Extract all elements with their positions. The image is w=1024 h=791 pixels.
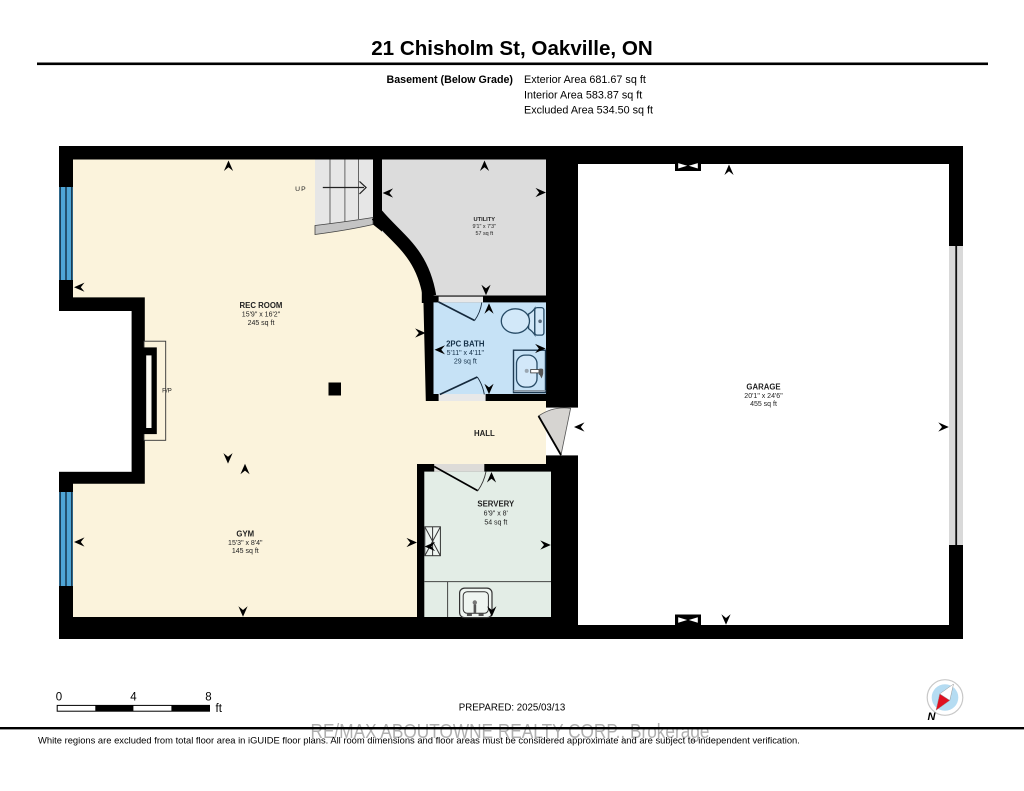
svg-text:SERVERY: SERVERY <box>477 499 515 508</box>
svg-text:0: 0 <box>56 692 62 704</box>
svg-text:9'1" x 7'3": 9'1" x 7'3" <box>473 224 497 230</box>
svg-text:Interior Area 583.87 sq ft: Interior Area 583.87 sq ft <box>524 89 642 101</box>
svg-text:57 sq ft: 57 sq ft <box>475 231 493 237</box>
svg-text:N: N <box>928 711 937 723</box>
svg-text:15'3" x 8'4": 15'3" x 8'4" <box>228 540 263 547</box>
svg-text:REC ROOM: REC ROOM <box>240 301 283 310</box>
svg-text:ft: ft <box>216 703 223 715</box>
svg-text:145 sq ft: 145 sq ft <box>232 548 259 555</box>
svg-text:F/P: F/P <box>162 387 172 394</box>
svg-text:455 sq ft: 455 sq ft <box>750 401 777 408</box>
svg-text:8: 8 <box>205 692 211 704</box>
svg-text:4: 4 <box>130 692 137 704</box>
svg-text:15'9" x 16'2": 15'9" x 16'2" <box>242 311 281 318</box>
svg-text:Excluded Area 534.50 sq ft: Excluded Area 534.50 sq ft <box>524 105 653 117</box>
svg-text:21 Chisholm St, Oakville, ON: 21 Chisholm St, Oakville, ON <box>371 37 653 60</box>
svg-text:PREPARED: 2025/03/13: PREPARED: 2025/03/13 <box>459 703 565 714</box>
svg-text:GARAGE: GARAGE <box>746 382 780 391</box>
svg-text:UP: UP <box>295 186 307 193</box>
svg-text:Basement (Below Grade): Basement (Below Grade) <box>386 74 513 86</box>
svg-text:20'1" x 24'6": 20'1" x 24'6" <box>744 393 783 400</box>
svg-text:6'9" x 8': 6'9" x 8' <box>484 511 508 518</box>
svg-text:245 sq ft: 245 sq ft <box>248 320 275 327</box>
svg-text:29 sq ft: 29 sq ft <box>454 359 477 366</box>
svg-text:HALL: HALL <box>474 429 495 438</box>
svg-text:2PC BATH: 2PC BATH <box>446 339 485 348</box>
svg-text:Exterior Area 681.67 sq ft: Exterior Area 681.67 sq ft <box>524 74 646 86</box>
svg-text:5'11" x 4'11": 5'11" x 4'11" <box>447 350 485 357</box>
svg-text:54 sq ft: 54 sq ft <box>484 519 507 526</box>
svg-text:GYM: GYM <box>236 529 254 538</box>
svg-text:UTILITY: UTILITY <box>474 217 496 223</box>
svg-text:White regions are excluded fro: White regions are excluded from total fl… <box>38 735 800 746</box>
